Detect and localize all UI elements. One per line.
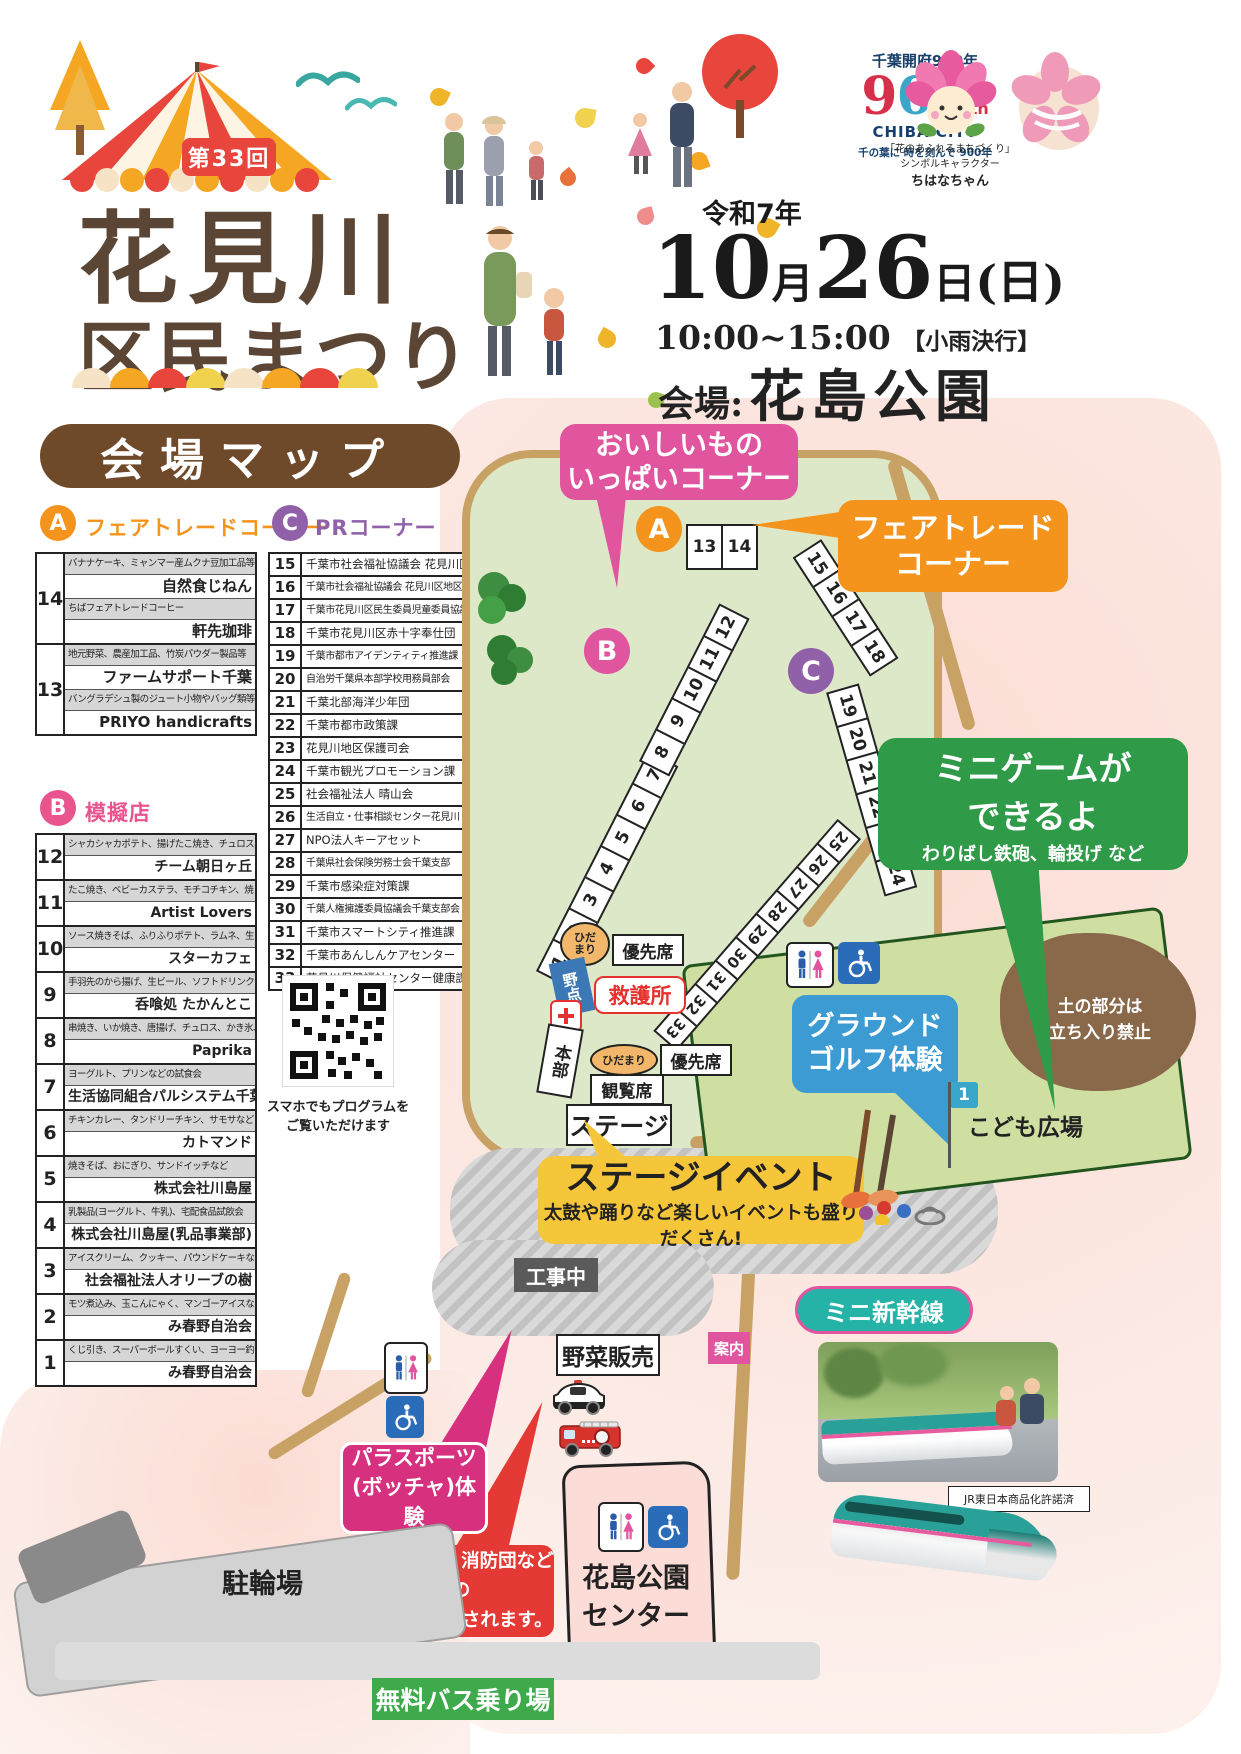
minigame-line1: ミニゲームが (934, 742, 1131, 790)
first-aid-label: 救護所 (609, 980, 672, 1010)
mother-child-illustration (458, 220, 588, 400)
festival-title-line2: 区民まつり (78, 296, 473, 406)
booth-desc: ちばフェアトレードコーヒー (65, 598, 255, 619)
table-row: 1くじ引き、スーパーボールすくい、ヨーヨー釣り、お菓子み春野自治会 (37, 1339, 255, 1385)
booth-number: 4 (37, 1203, 65, 1247)
priority-seat-label: 優先席 (671, 1048, 722, 1073)
train-photo (818, 1342, 1058, 1482)
fairtrade-line2: コーナー (895, 546, 1011, 582)
fire-truck-icon (558, 1416, 622, 1460)
booth-number: 26 (270, 807, 302, 828)
chiba-900th-digit: 9 (861, 66, 897, 127)
booth-number: 8 (37, 1019, 65, 1063)
qr-caption-line2: ご覧いただけます (258, 1115, 418, 1134)
toilet-icon (384, 1342, 428, 1394)
table-row: 2モツ煮込み、玉こんにゃく、マンゴーアイスなどみ春野自治会 (37, 1293, 255, 1339)
ground-golf-illustration (838, 1105, 948, 1225)
booth-number: 19 (270, 646, 302, 667)
booth-number: 15 (270, 554, 302, 575)
groundgolf-line1: グラウンド (808, 1010, 943, 1044)
booth-number: 24 (270, 761, 302, 782)
viewing-seat-box: 観覧席 (590, 1074, 664, 1105)
date-weekday: (日) (975, 255, 1065, 309)
section-c-title: PRコーナー (315, 512, 437, 542)
booth-number: 21 (270, 692, 302, 713)
table-row: 3アイスクリーム、クッキー、パウンドケーキなど社会福祉法人オリーブの樹 (37, 1247, 255, 1293)
booth-number: 5 (37, 1157, 65, 1201)
booth-desc: 手羽先のから揚げ、生ビール、ソフトドリンクなど (65, 973, 255, 993)
wheelchair-icon (838, 942, 880, 984)
sakura-flower-icon (1005, 48, 1105, 158)
booth-number: 25 (270, 784, 302, 805)
booth-name: ファームサポート千葉 (65, 665, 255, 689)
venue-map-title-label: 会場マップ (100, 424, 400, 488)
booth-desc: バングラデシュ製のジュート小物やバッグ類等 (65, 689, 255, 710)
booth-number: 23 (270, 738, 302, 759)
booth-name: 生活協同組合パルシステム千葉 (65, 1085, 255, 1109)
fairtrade-callout: フェアトレード コーナー (838, 500, 1068, 592)
booth-number: 3 (37, 1249, 65, 1293)
booth-number: 2 (37, 1295, 65, 1339)
booth-desc: 串焼き、いか焼き、唐揚げ、チュロス、かき氷、綿菓子など (65, 1019, 255, 1039)
tree-icon (472, 568, 532, 638)
booth-name: 自然食じねん (65, 574, 255, 598)
qr-caption-line1: スマホでもプログラムを (258, 1096, 418, 1115)
mini-shinkansen-pill: ミニ新幹線 (795, 1286, 973, 1334)
table-row: 12シャカシャカポテト、揚げたこ焼き、チュロス、焼きそばなどチーム朝日ヶ丘 (37, 835, 255, 879)
flag-number: 1 (950, 1082, 978, 1108)
hq-label: 本部 (545, 1042, 576, 1080)
qr-caption: スマホでもプログラムを ご覧いただけます (258, 1096, 418, 1134)
table-row: 13 地元野菜、農産加工品、竹炭パウダー製品等 ファームサポート千葉 バングラデ… (37, 643, 255, 734)
booth-desc: 地元野菜、農産加工品、竹炭パウダー製品等 (65, 645, 255, 665)
bus-stop-label: 無料バス乗り場 (375, 1681, 550, 1717)
time-note: 【小雨決行】 (902, 328, 1040, 355)
section-b-badge: B (40, 790, 76, 826)
leaf-icon (427, 85, 451, 109)
booth-number: 30 (270, 899, 302, 920)
booth-desc: 乳製品(ヨーグルト、牛乳)、宅配食品試飲会 (65, 1203, 255, 1223)
venue-line: 会場: 花島公園 (658, 352, 997, 433)
table-row: 9手羽先のから揚げ、生ビール、ソフトドリンクなど呑喰処 たかんとこ (37, 971, 255, 1017)
booth-number: 9 (37, 973, 65, 1017)
first-aid-box: 救護所 (594, 976, 686, 1014)
hidamari-label: ひだまり (572, 932, 598, 956)
section-c-badge: C (272, 505, 308, 541)
event-date: 10月26日(日) (652, 218, 1065, 319)
venue-prefix: 会場: (658, 383, 743, 425)
booth-desc: モツ煮込み、玉こんにゃく、マンゴーアイスなど (65, 1295, 255, 1315)
booth-number: 18 (270, 623, 302, 644)
priority-seat-box: 優先席 (660, 1044, 732, 1076)
stage-event-sub: 太鼓や踊りなど楽しいイベントも盛りだくさん! (538, 1199, 864, 1251)
booth-number: 6 (37, 1111, 65, 1155)
minigame-line2: できるよ (967, 790, 1098, 838)
mascot-caption-line1: 「花のあふれるまちづくり」 (880, 140, 1020, 155)
date-day: 26 (814, 218, 934, 319)
booth-number: 32 (270, 945, 302, 966)
table-row: 10ソース焼きそば、ふりふりポテト、ラムネ、生ビールなどスターカフェ (37, 925, 255, 971)
booth-desc: くじ引き、スーパーボールすくい、ヨーヨー釣り、お菓子 (65, 1341, 255, 1361)
mascot-chihana-icon (905, 48, 997, 143)
mascot-name: ちはなちゃん (880, 170, 1020, 189)
booth-name: Artist Lovers (65, 901, 255, 925)
booth-name: み春野自治会 (65, 1315, 255, 1339)
table-row: 5焼きそば、おにぎり、サンドイッチなど株式会社川島屋 (37, 1155, 255, 1201)
booth-number: 22 (270, 715, 302, 736)
venue-map-title: 会場マップ (40, 424, 460, 488)
park-center-label: 花島公園 センター (565, 1560, 707, 1636)
booth-number: 14 (37, 554, 65, 643)
booth-name: カトマンド (65, 1131, 255, 1155)
booth-name: 呑喰処 たかんとこ (65, 993, 255, 1017)
booth-name: 株式会社川島屋 (65, 1177, 255, 1201)
booth-desc: 焼きそば、おにぎり、サンドイッチなど (65, 1157, 255, 1177)
booth-number: 11 (37, 881, 65, 925)
stage-box: ステージ (566, 1104, 672, 1146)
groundgolf-callout: グラウンド ゴルフ体験 (792, 995, 958, 1093)
priority-seat-box: 優先席 (612, 934, 684, 966)
table-row: 4乳製品(ヨーグルト、牛乳)、宅配食品試飲会株式会社川島屋(乳品事業部) (37, 1201, 255, 1247)
table-row: 14 バナナケーキ、ミャンマー産ムクナ豆加工品等 自然食じねん ちばフェアトレー… (37, 554, 255, 643)
wheelchair-icon (648, 1506, 688, 1548)
road (55, 1642, 820, 1680)
construction-label: 工事中 (514, 1258, 598, 1292)
booth-desc: ヨーグルト、プリンなどの試食会 (65, 1065, 255, 1085)
bicycle-parking-label: 駐輪場 (222, 1562, 303, 1601)
booth-name: み春野自治会 (65, 1361, 255, 1385)
booth-desc: たこ焼き、ベビーカステラ、モチコチキン、焼き鳥など (65, 881, 255, 901)
bus-stop-sign: 無料バス乗り場 (372, 1678, 554, 1720)
section-b-title: 模擬店 (85, 797, 151, 827)
booth-cell: 14 (721, 524, 758, 570)
stage-event-title: ステージイベント (565, 1150, 836, 1199)
priority-seat-label: 優先席 (623, 938, 674, 963)
booth-number: 16 (270, 577, 302, 598)
booth-name: チーム朝日ヶ丘 (65, 855, 255, 879)
marker-c: C (788, 648, 834, 694)
groundgolf-line2: ゴルフ体験 (808, 1044, 943, 1078)
booth-number: 13 (37, 645, 65, 734)
parasports-line2: (ボッチャ)体験 (343, 1473, 485, 1532)
park-center-line1: 花島公園 (565, 1560, 707, 1598)
bird-icon (345, 92, 397, 114)
edition-badge: 第33回 (182, 138, 276, 176)
kodomo-hiroba-label: こども広場 (968, 1108, 1083, 1142)
date-month-unit: 月 (772, 259, 814, 308)
vegetable-sale-box: 野菜販売 (556, 1334, 660, 1376)
nodate-label: 野点 (559, 970, 586, 1004)
date-month: 10 (652, 218, 772, 319)
annai-sign: 案内 (708, 1332, 750, 1364)
booth-number: 1 (37, 1341, 65, 1385)
police-car-icon (550, 1378, 608, 1416)
oishii-line2: いっぱいコーナー (567, 462, 791, 496)
table-row: 11たこ焼き、ベビーカステラ、モチコチキン、焼き鳥などArtist Lovers (37, 879, 255, 925)
booth-number: 12 (37, 835, 65, 879)
booth-number: 20 (270, 669, 302, 690)
fairtrade-line1: フェアトレード (851, 510, 1054, 546)
booth-number: 31 (270, 922, 302, 943)
mascot-caption: 「花のあふれるまちづくり」 シンボルキャラクター ちはなちゃん (880, 140, 1020, 189)
festival-poster: 第33回 花見川 区民まつり 千葉開府900年 900th CHIBA CITY… (0, 0, 1241, 1754)
scallop-decoration (72, 368, 402, 388)
family-illustration (612, 78, 732, 198)
booth-name: 軒先珈琲 (65, 619, 255, 643)
leaf-icon (595, 327, 620, 352)
booth-number: 10 (37, 927, 65, 971)
orange-tree-icon (45, 40, 115, 160)
viewing-seat-label: 観覧席 (602, 1077, 653, 1102)
family-illustration (432, 108, 572, 228)
booth-desc: チキンカレー、タンドリーチキン、サモサなど (65, 1111, 255, 1131)
booth-number: 17 (270, 600, 302, 621)
booth-number: 27 (270, 830, 302, 851)
stage-label: ステージ (569, 1107, 669, 1143)
parasports-line1: パラスポーツ (351, 1444, 476, 1473)
booth-name: Paprika (65, 1039, 255, 1063)
booth-number: 29 (270, 876, 302, 897)
table-row: 7ヨーグルト、プリンなどの試食会生活協同組合パルシステム千葉 (37, 1063, 255, 1109)
wheelchair-icon (386, 1396, 424, 1438)
parasports-callout: パラスポーツ (ボッチャ)体験 (340, 1442, 488, 1534)
table-row: 6チキンカレー、タンドリーチキン、サモサなどカトマンド (37, 1109, 255, 1155)
toilet-icon (598, 1502, 644, 1552)
mini-shinkansen-label: ミニ新幹線 (824, 1293, 944, 1328)
hidamari-badge: ひだまり (590, 1044, 658, 1076)
table-row: 8串焼き、いか焼き、唐揚げ、チュロス、かき氷、綿菓子などPaprika (37, 1017, 255, 1063)
booth-strip-a: 13 14 (688, 524, 758, 570)
construction-text: 工事中 (526, 1261, 586, 1290)
tree-icon (482, 632, 538, 696)
oishii-line1: おいしいもの (595, 428, 763, 462)
vegetable-sale-label: 野菜販売 (562, 1338, 654, 1372)
mascot-caption-line2: シンボルキャラクター (880, 155, 1020, 170)
date-day-unit: 日 (933, 259, 975, 308)
minigame-callout: ミニゲームが できるよ わりばし鉄砲、輪投げ など (878, 738, 1188, 870)
booth-name: 社会福祉法人オリーブの樹 (65, 1269, 255, 1293)
bird-icon (296, 66, 360, 92)
edition-badge-label: 第33回 (188, 141, 271, 173)
stage-event-callout: ステージイベント 太鼓や踊りなど楽しいイベントも盛りだくさん! (538, 1156, 864, 1244)
booth-desc: ソース焼きそば、ふりふりポテト、ラムネ、生ビールなど (65, 927, 255, 947)
marker-b: B (584, 628, 630, 674)
food-stall-list: 12シャカシャカポテト、揚げたこ焼き、チュロス、焼きそばなどチーム朝日ヶ丘 11… (35, 833, 257, 1387)
booth-desc: アイスクリーム、クッキー、パウンドケーキなど (65, 1249, 255, 1269)
annai-label: 案内 (714, 1338, 744, 1359)
jr-license-text: JR東日本商品化許諾済 (964, 1491, 1074, 1507)
booth-number: 28 (270, 853, 302, 874)
marker-a: A (636, 506, 682, 552)
booth-name: スターカフェ (65, 947, 255, 971)
minigame-sub: わりばし鉄砲、輪投げ など (922, 840, 1144, 866)
hidamari-label: ひだまり (602, 1052, 646, 1068)
toilet-icon (786, 942, 834, 988)
park-center-line2: センター (565, 1598, 707, 1636)
venue-name: 花島公園 (749, 364, 997, 430)
booth-number: 7 (37, 1065, 65, 1109)
oishii-callout: おいしいもの いっぱいコーナー (560, 424, 798, 500)
booth-desc: シャカシャカポテト、揚げたこ焼き、チュロス、焼きそばなど (65, 835, 255, 855)
booth-desc: バナナケーキ、ミャンマー産ムクナ豆加工品等 (65, 554, 255, 574)
booth-cell: 13 (686, 524, 723, 570)
leaf-icon (633, 55, 656, 78)
section-a-badge: A (40, 505, 76, 541)
booth-name: 株式会社川島屋(乳品事業部) (65, 1223, 255, 1247)
qr-code (282, 975, 394, 1087)
booth-name: PRIYO handicrafts (65, 710, 255, 734)
fairtrade-list: 14 バナナケーキ、ミャンマー産ムクナ豆加工品等 自然食じねん ちばフェアトレー… (35, 552, 257, 736)
leaf-icon (573, 106, 596, 129)
